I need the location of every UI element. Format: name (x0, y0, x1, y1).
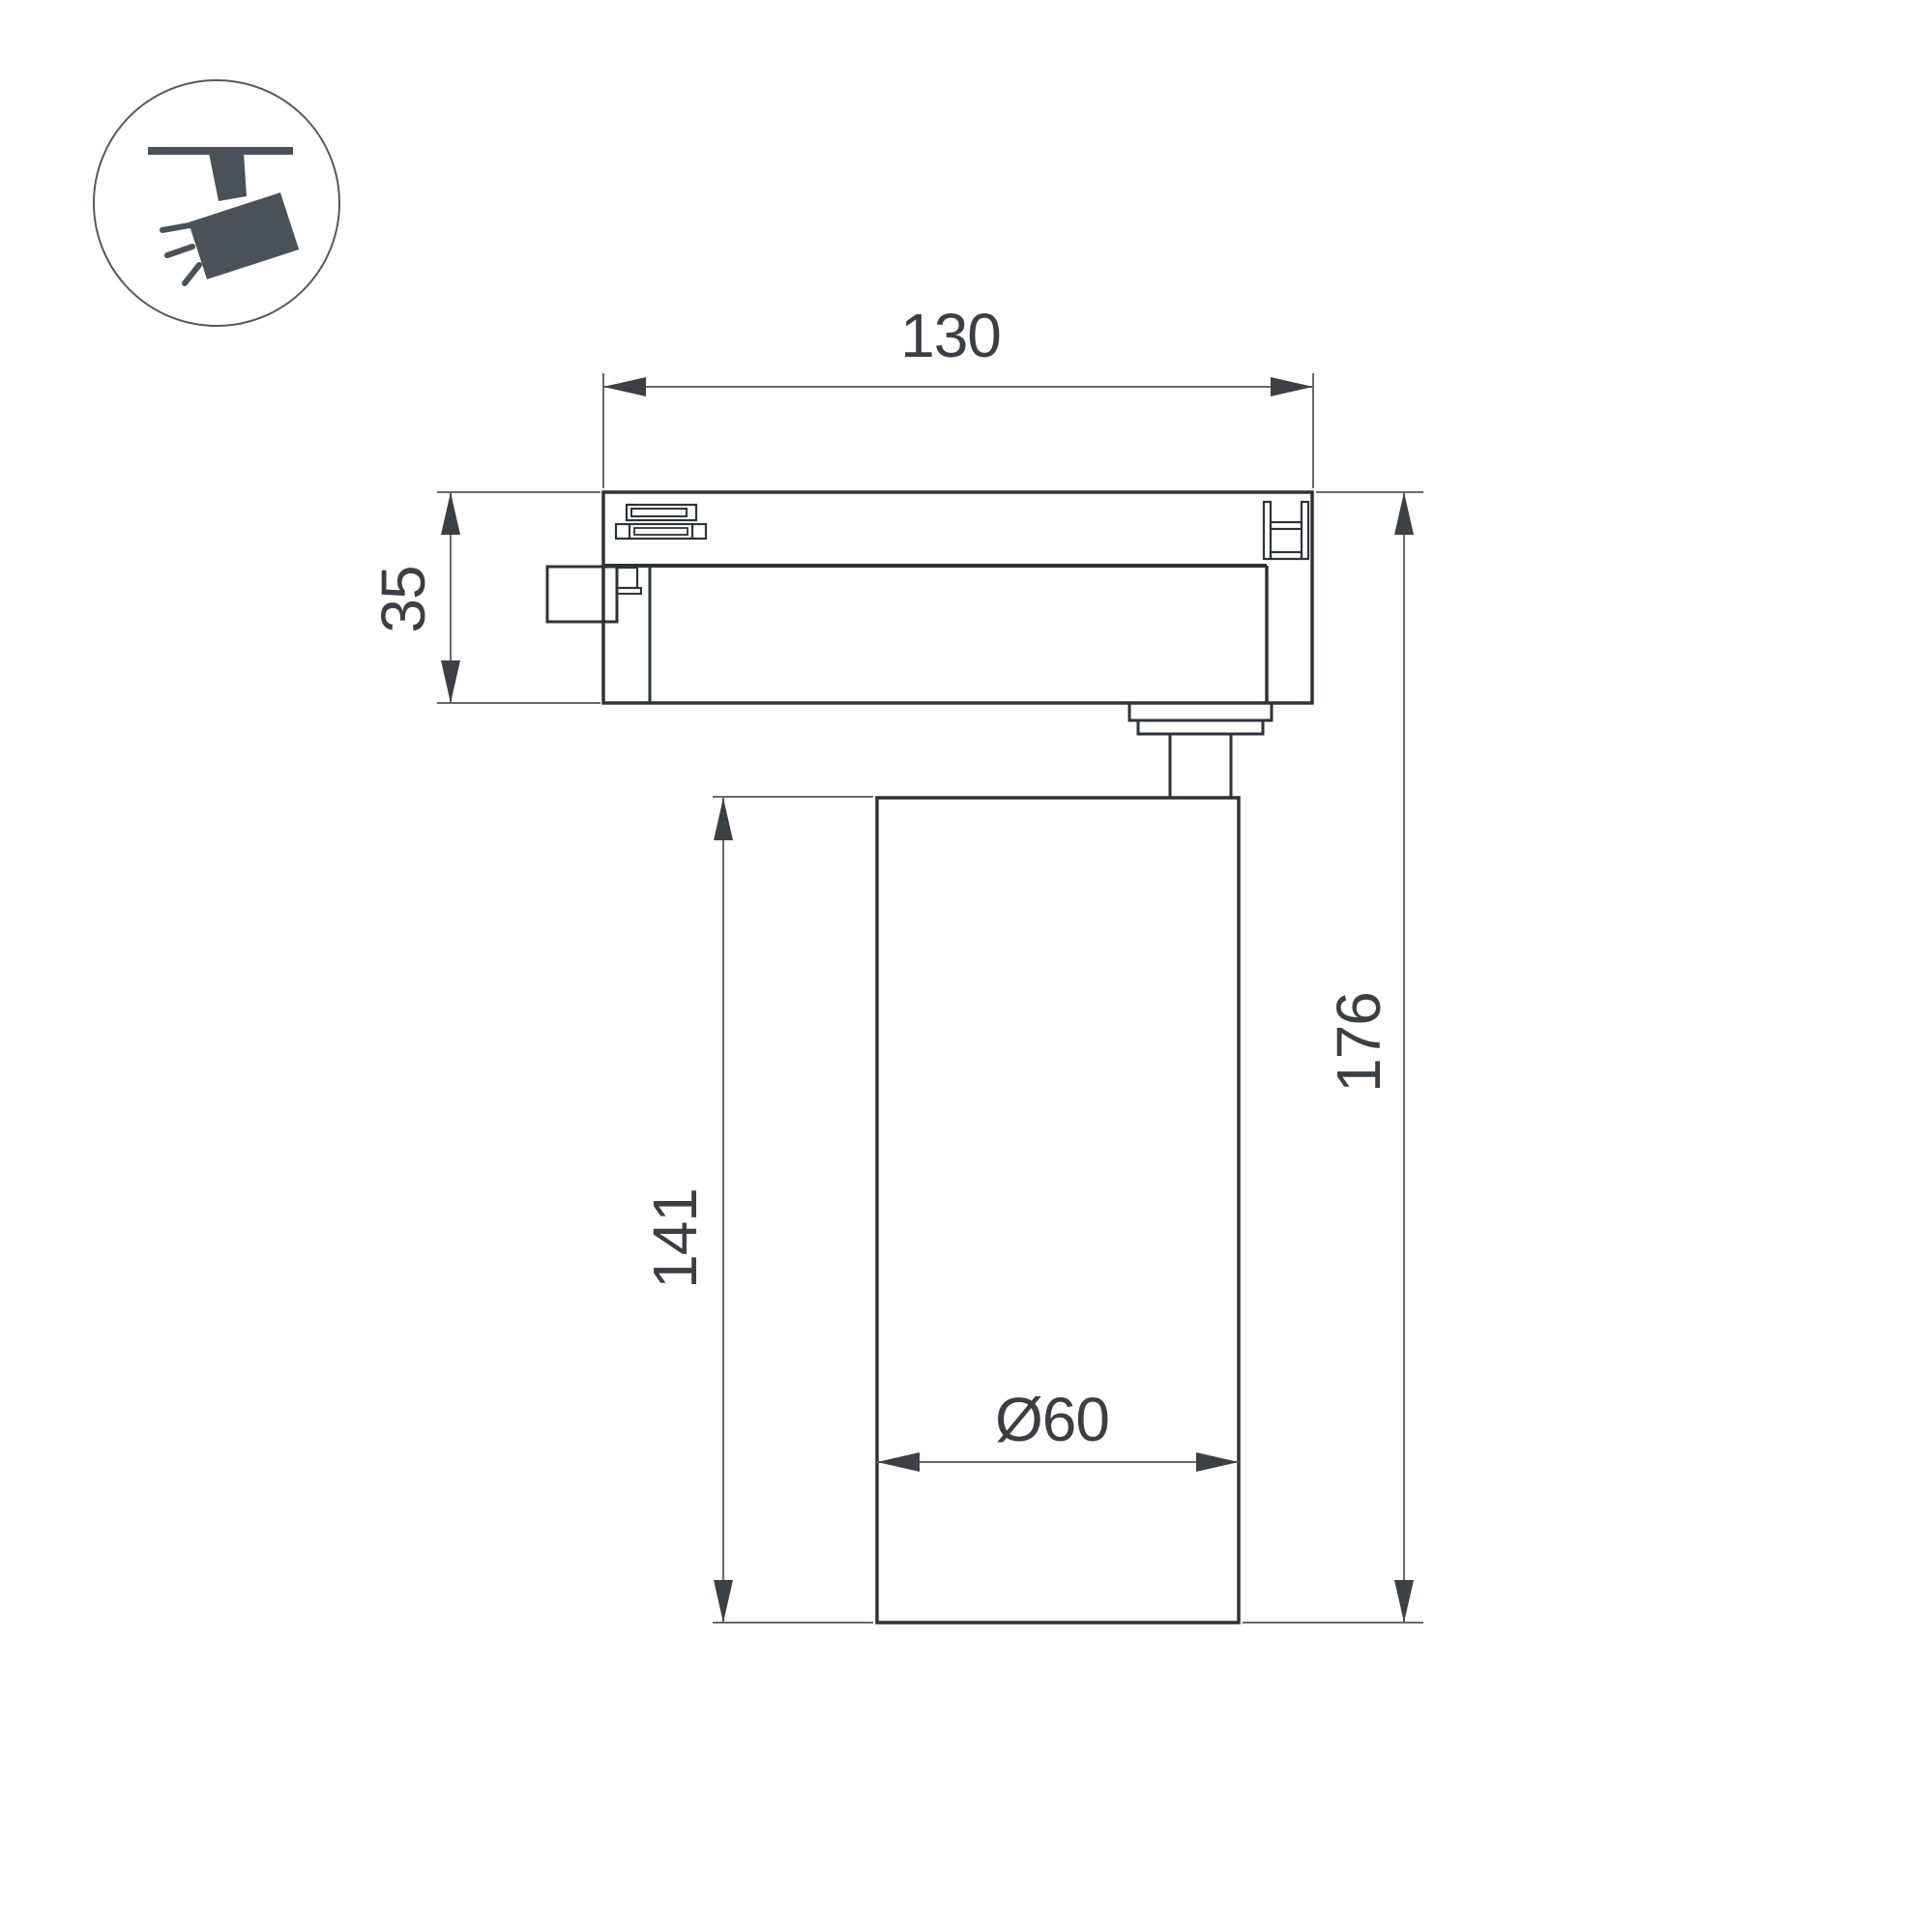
dimension-width-130: 130 (603, 301, 1313, 488)
dimension-drawing: 130 35 141 (0, 0, 1932, 1932)
pivot-stem (1129, 703, 1272, 798)
contact-clip-upper (627, 505, 696, 520)
lock-tab-step (617, 588, 641, 594)
dimension-body-height-141: 141 (640, 797, 873, 1623)
adapter-body (603, 492, 1312, 703)
dim-label-176: 176 (1324, 992, 1393, 1093)
stem-step-1 (1129, 703, 1272, 720)
stem-step-2 (1138, 720, 1263, 734)
dimension-diameter-60: Ø60 (877, 1385, 1239, 1472)
dim-label-35: 35 (368, 566, 438, 632)
latch-clip (1264, 502, 1308, 559)
dim-label-diameter: Ø60 (995, 1385, 1109, 1454)
dimension-total-height-176: 176 (1243, 492, 1423, 1623)
contact-clip-lower (616, 524, 706, 539)
lock-tab-notch (617, 568, 637, 588)
drawing-canvas: 130 35 141 (0, 0, 1932, 1932)
icon-circle (94, 80, 339, 326)
track-light-icon (94, 80, 339, 326)
lock-tab (547, 567, 617, 622)
dim-label-130: 130 (900, 301, 1001, 370)
dim-label-141: 141 (640, 1188, 710, 1289)
lamp-body (877, 798, 1239, 1623)
dimension-adapter-height-35: 35 (368, 492, 600, 703)
track-adapter (547, 492, 1312, 703)
